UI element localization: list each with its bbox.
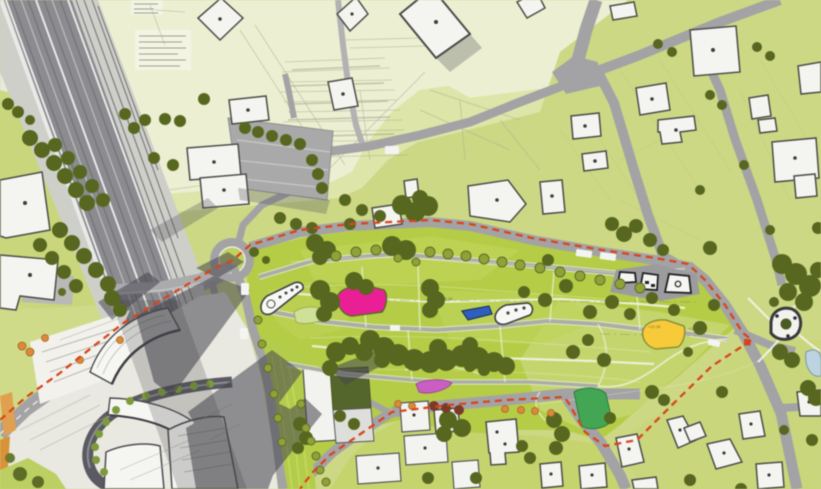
svg-text:+16.18: +16.18 [440, 296, 453, 301]
svg-text:+12.28: +12.28 [648, 324, 661, 329]
svg-text:+12.28: +12.28 [688, 326, 701, 331]
